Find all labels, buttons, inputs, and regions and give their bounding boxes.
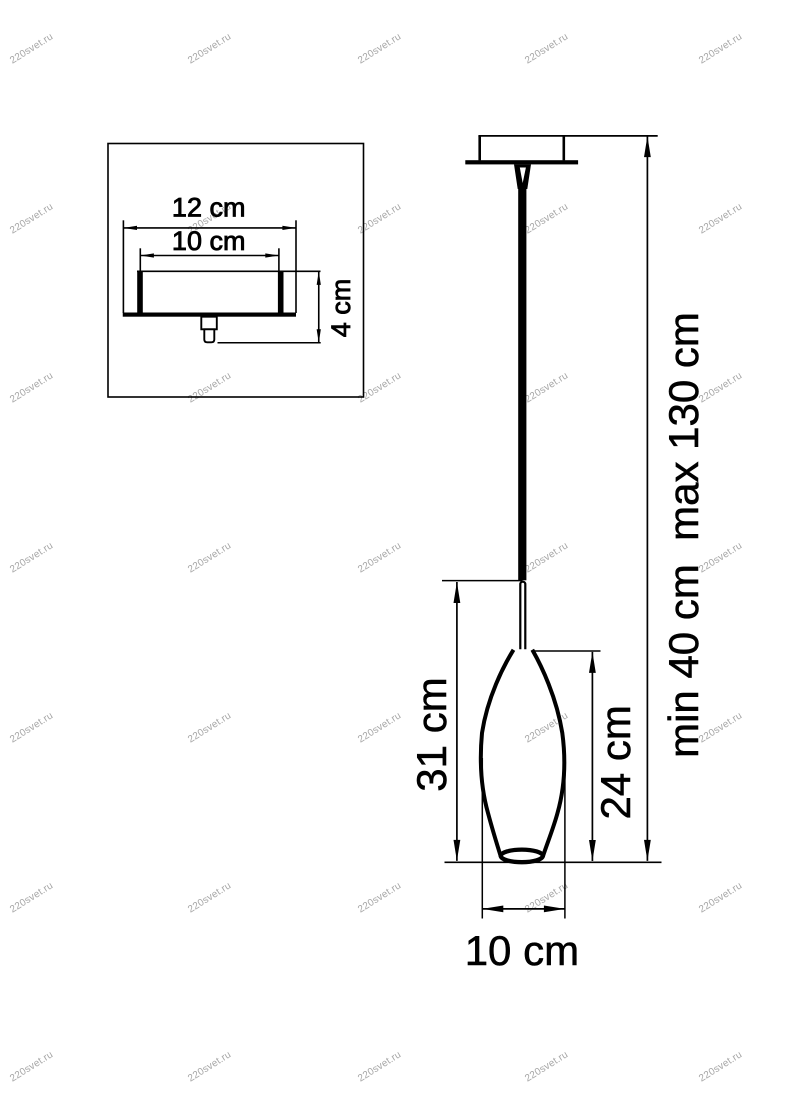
- svg-text:4 cm: 4 cm: [326, 279, 356, 338]
- svg-text:10 cm: 10 cm: [172, 226, 246, 256]
- svg-text:31 cm: 31 cm: [408, 677, 455, 791]
- svg-text:24 cm: 24 cm: [592, 705, 639, 819]
- svg-text:10 cm: 10 cm: [465, 927, 579, 974]
- svg-text:min 40 cm max 130 cm: min 40 cm max 130 cm: [660, 312, 707, 758]
- svg-text:12 cm: 12 cm: [172, 193, 246, 223]
